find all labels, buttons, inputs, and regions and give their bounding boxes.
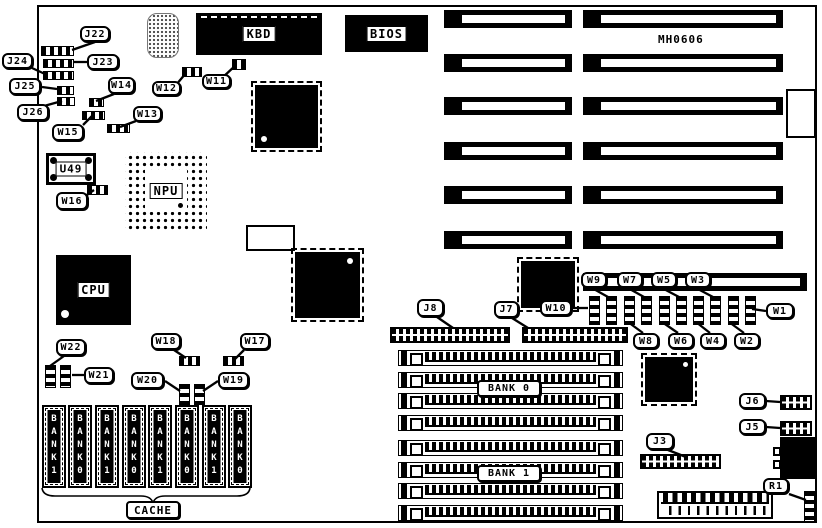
- cache-bank-text: BANK0: [181, 410, 194, 483]
- slot-groove: [462, 147, 565, 155]
- resistor-pack-r1: [804, 491, 815, 522]
- cache-socket: BANK1: [95, 405, 119, 488]
- cache-bank-text: BANK1: [154, 410, 167, 483]
- jumper-j26: [57, 97, 75, 106]
- simm-end: [401, 394, 407, 408]
- jumper-w2: [728, 296, 739, 325]
- callout-w8: W8: [633, 333, 659, 349]
- callout-w18: W18: [151, 333, 181, 350]
- cache-socket: BANK0: [68, 405, 92, 488]
- bank1-label: BANK 1: [477, 465, 541, 482]
- callout-j22: J22: [80, 26, 110, 42]
- isa-slot: [444, 186, 572, 204]
- cache-socket: BANK1: [42, 405, 66, 488]
- simm-end: [401, 463, 407, 477]
- simm-contacts: [425, 485, 596, 495]
- pin1-dot: [61, 310, 69, 318]
- callout-w22: W22: [56, 339, 86, 356]
- callout-w3: W3: [685, 272, 711, 288]
- npu-label: NPU: [150, 183, 183, 199]
- simm-end: [614, 506, 620, 520]
- cache-bank-text: BANK1: [208, 410, 221, 483]
- jumper-w18: [179, 356, 200, 366]
- callout-w17: W17: [240, 333, 270, 350]
- simm-latch: [410, 508, 423, 521]
- simm-latch: [598, 443, 611, 456]
- jumper-w15: [82, 111, 105, 120]
- callout-j8: J8: [417, 299, 444, 317]
- callout-j24: J24: [2, 53, 33, 69]
- simm-latch: [410, 375, 423, 388]
- u49-chip: U49: [46, 153, 96, 185]
- callout-w10: W10: [540, 300, 572, 316]
- simm-latch: [598, 418, 611, 431]
- callout-j23: J23: [87, 54, 119, 70]
- jumper-w11: [232, 59, 246, 70]
- jumper-w3: [710, 296, 721, 325]
- simm-end: [614, 463, 620, 477]
- callout-w13: W13: [133, 106, 162, 122]
- cpu-label: CPU: [77, 282, 110, 298]
- header-j6: [780, 395, 812, 410]
- simm-latch: [598, 486, 611, 499]
- motherboard-layout-diagram: MH0606 KBD BIOS NPU U49 CPU: [0, 0, 822, 528]
- callout-w11: W11: [202, 74, 231, 89]
- isa-slot: [583, 186, 783, 204]
- simm-end: [614, 394, 620, 408]
- callout-w12: W12: [152, 81, 181, 96]
- jumper-w9: [606, 296, 617, 325]
- simm-contacts: [425, 417, 596, 427]
- simm-latch: [410, 465, 423, 478]
- callout-w16: W16: [56, 192, 88, 210]
- callout-j3: J3: [646, 433, 674, 450]
- callout-w4: W4: [700, 333, 726, 349]
- jumper-w7: [641, 296, 652, 325]
- simm-latch: [598, 375, 611, 388]
- cache-bank-text: BANK0: [234, 410, 247, 483]
- oscillator-outline: [246, 225, 295, 251]
- simm-latch: [410, 486, 423, 499]
- jumper-w20: [179, 384, 190, 405]
- callout-w2: W2: [734, 333, 760, 349]
- isa-slot: [583, 10, 783, 28]
- slot-groove: [601, 191, 776, 199]
- simm-latch: [410, 418, 423, 431]
- chip-notch-line: [201, 16, 317, 18]
- isa-slot: [444, 54, 572, 72]
- simm-end: [401, 351, 407, 365]
- simm-latch: [598, 465, 611, 478]
- pin1-dot: [347, 258, 353, 264]
- simm-end: [401, 484, 407, 498]
- isa-slot: [444, 10, 572, 28]
- jumper-w19: [194, 384, 205, 405]
- callout-w21: W21: [84, 367, 114, 384]
- slot-groove: [601, 102, 776, 110]
- jumper-w5: [676, 296, 687, 325]
- jumper-w17: [223, 356, 244, 366]
- simm-contacts: [425, 352, 596, 362]
- simm-latch: [410, 443, 423, 456]
- callout-w9: W9: [581, 272, 607, 288]
- jumper-j23: [43, 59, 74, 68]
- power-pins: [661, 493, 769, 504]
- simm-end: [401, 506, 407, 520]
- simm-latch: [410, 396, 423, 409]
- jumper-w16: [87, 185, 108, 195]
- pin1-dot: [261, 136, 267, 142]
- isa-slot: [444, 142, 572, 160]
- keyboard-din-connector: [780, 437, 815, 479]
- npu-socket: NPU: [125, 152, 207, 230]
- power-pin-holes: [662, 506, 768, 515]
- jumper-w1: [745, 296, 756, 325]
- jumper-j22: [41, 46, 74, 56]
- isa-slot: [583, 231, 783, 249]
- simm-contacts: [425, 442, 596, 452]
- jumper-w6: [659, 296, 670, 325]
- slot-groove: [601, 59, 776, 67]
- cache-bank-text: BANK0: [128, 410, 141, 483]
- jumper-w10: [589, 296, 600, 325]
- simm-socket: [398, 415, 623, 431]
- slot-groove: [462, 236, 565, 244]
- bank0-label: BANK 0: [477, 380, 541, 397]
- slot-groove: [462, 59, 565, 67]
- kbd-controller-chip: KBD: [196, 13, 322, 55]
- simm-socket: [398, 483, 623, 499]
- cache-bank-text: BANK1: [48, 410, 61, 483]
- slot-groove: [462, 191, 565, 199]
- simm-socket: [398, 350, 623, 366]
- jumper-w22: [45, 365, 56, 388]
- qfp-chip: [255, 85, 318, 148]
- simm-end: [401, 373, 407, 387]
- slot-groove: [601, 15, 776, 23]
- isa-slot: [444, 97, 572, 115]
- jumper-w8: [624, 296, 635, 325]
- callout-w5: W5: [651, 272, 677, 288]
- power-connector: [657, 491, 773, 519]
- cache-bank-text: BANK0: [74, 410, 87, 483]
- callout-j25: J25: [9, 78, 41, 95]
- slot-groove: [601, 236, 776, 244]
- edge-connector: [786, 89, 816, 138]
- simm-end: [614, 484, 620, 498]
- header-j3: [640, 454, 721, 469]
- pin1-dot: [178, 203, 183, 208]
- simm-socket: [398, 505, 623, 521]
- jumper-w4: [693, 296, 704, 325]
- callout-w7: W7: [617, 272, 643, 288]
- callout-j7: J7: [494, 301, 519, 318]
- kbd-chip-label: KBD: [243, 26, 276, 42]
- simm-end: [401, 441, 407, 455]
- callout-w15: W15: [52, 124, 84, 141]
- simm-socket: [398, 440, 623, 456]
- qfp-chip: [645, 357, 693, 402]
- callout-w19: W19: [218, 372, 249, 389]
- callout-w20: W20: [131, 372, 164, 389]
- jumper-w21: [60, 365, 71, 388]
- header-j8: [390, 327, 510, 343]
- simm-latch: [598, 508, 611, 521]
- jumper-j24: [43, 71, 74, 80]
- callout-w6: W6: [668, 333, 694, 349]
- cache-label: CACHE: [126, 501, 180, 519]
- simm-end: [614, 351, 620, 365]
- cache-socket: BANK1: [202, 405, 226, 488]
- callout-w14: W14: [108, 77, 135, 94]
- slot-groove: [601, 147, 776, 155]
- qfp-chip: [295, 252, 360, 318]
- callout-r1: R1: [763, 478, 789, 494]
- simm-end: [614, 441, 620, 455]
- simm-latch: [598, 353, 611, 366]
- cache-socket: BANK1: [148, 405, 172, 488]
- cache-socket: BANK0: [175, 405, 199, 488]
- bios-chip: BIOS: [345, 15, 428, 52]
- connector-tab: [773, 460, 781, 469]
- isa-slot: [583, 54, 783, 72]
- board-model-text: MH0606: [658, 33, 704, 46]
- simm-end: [614, 373, 620, 387]
- jumper-w13: [107, 124, 130, 133]
- jumper-j25: [57, 86, 74, 95]
- header-j5: [780, 421, 812, 436]
- cpu-chip: CPU: [56, 255, 131, 325]
- isa-slot: [583, 97, 783, 115]
- callout-j26: J26: [17, 104, 49, 121]
- simm-latch: [410, 353, 423, 366]
- u49-label: U49: [56, 162, 87, 177]
- cache-socket: BANK0: [228, 405, 252, 488]
- simm-end: [401, 416, 407, 430]
- isa-slot: [444, 231, 572, 249]
- simm-end: [614, 416, 620, 430]
- callout-j5: J5: [739, 419, 766, 435]
- simm-latch: [598, 396, 611, 409]
- slot-groove: [462, 15, 565, 23]
- callout-w1: W1: [766, 303, 794, 319]
- pin1-dot: [683, 362, 688, 367]
- simm-contacts: [425, 507, 596, 517]
- cache-bank-text: BANK1: [101, 410, 114, 483]
- isa-slot: [583, 142, 783, 160]
- slot-groove: [462, 102, 565, 110]
- crystal-oscillator: [147, 13, 179, 58]
- header-j7: [522, 327, 628, 343]
- jumper-w14: [89, 98, 104, 107]
- jumper-w12: [182, 67, 202, 77]
- callout-j6: J6: [739, 393, 766, 409]
- bios-chip-label: BIOS: [366, 26, 407, 42]
- connector-tab: [773, 447, 781, 456]
- cache-socket: BANK0: [122, 405, 146, 488]
